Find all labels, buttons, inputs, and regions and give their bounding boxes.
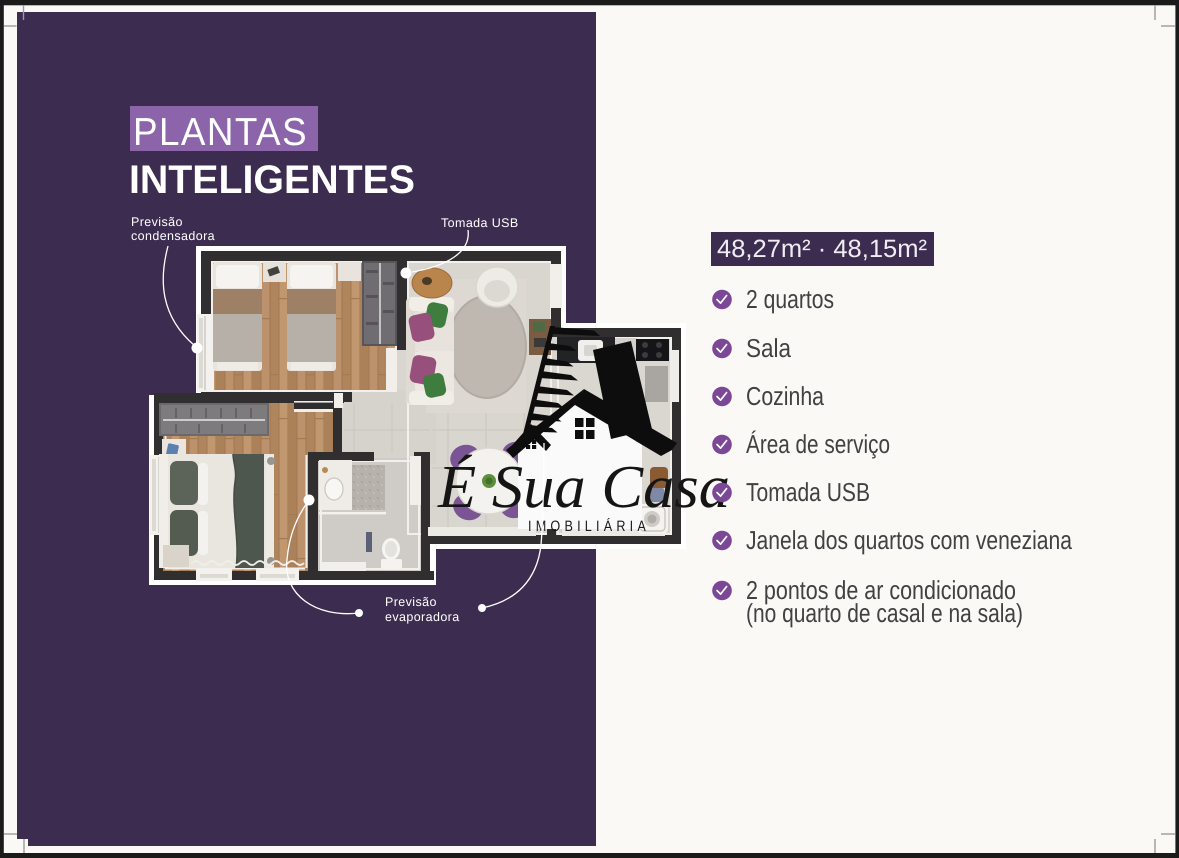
svg-text:evaporadora: evaporadora [385, 610, 460, 624]
svg-text:Previsão: Previsão [385, 595, 437, 609]
svg-text:PLANTAS: PLANTAS [133, 111, 308, 154]
svg-text:É Sua Casa: É Sua Casa [437, 454, 730, 521]
svg-text:IMOBILIÁRIA: IMOBILIÁRIA [528, 517, 650, 535]
svg-text:48,27m² · 48,15m²: 48,27m² · 48,15m² [717, 235, 927, 263]
svg-text:Cozinha: Cozinha [746, 381, 824, 411]
svg-text:Janela dos quartos com venezia: Janela dos quartos com veneziana [746, 525, 1072, 555]
svg-text:INTELIGENTES: INTELIGENTES [129, 158, 415, 202]
svg-text:Tomada USB: Tomada USB [441, 216, 519, 230]
svg-text:condensadora: condensadora [131, 229, 215, 243]
svg-text:Previsão: Previsão [131, 215, 183, 229]
svg-text:(no quarto de casal e na sala): (no quarto de casal e na sala) [746, 598, 1023, 628]
svg-text:Tomada USB: Tomada USB [746, 477, 870, 507]
svg-text:Sala: Sala [746, 333, 791, 363]
svg-text:Área de serviço: Área de serviço [746, 429, 890, 459]
svg-text:2 quartos: 2 quartos [746, 284, 834, 314]
